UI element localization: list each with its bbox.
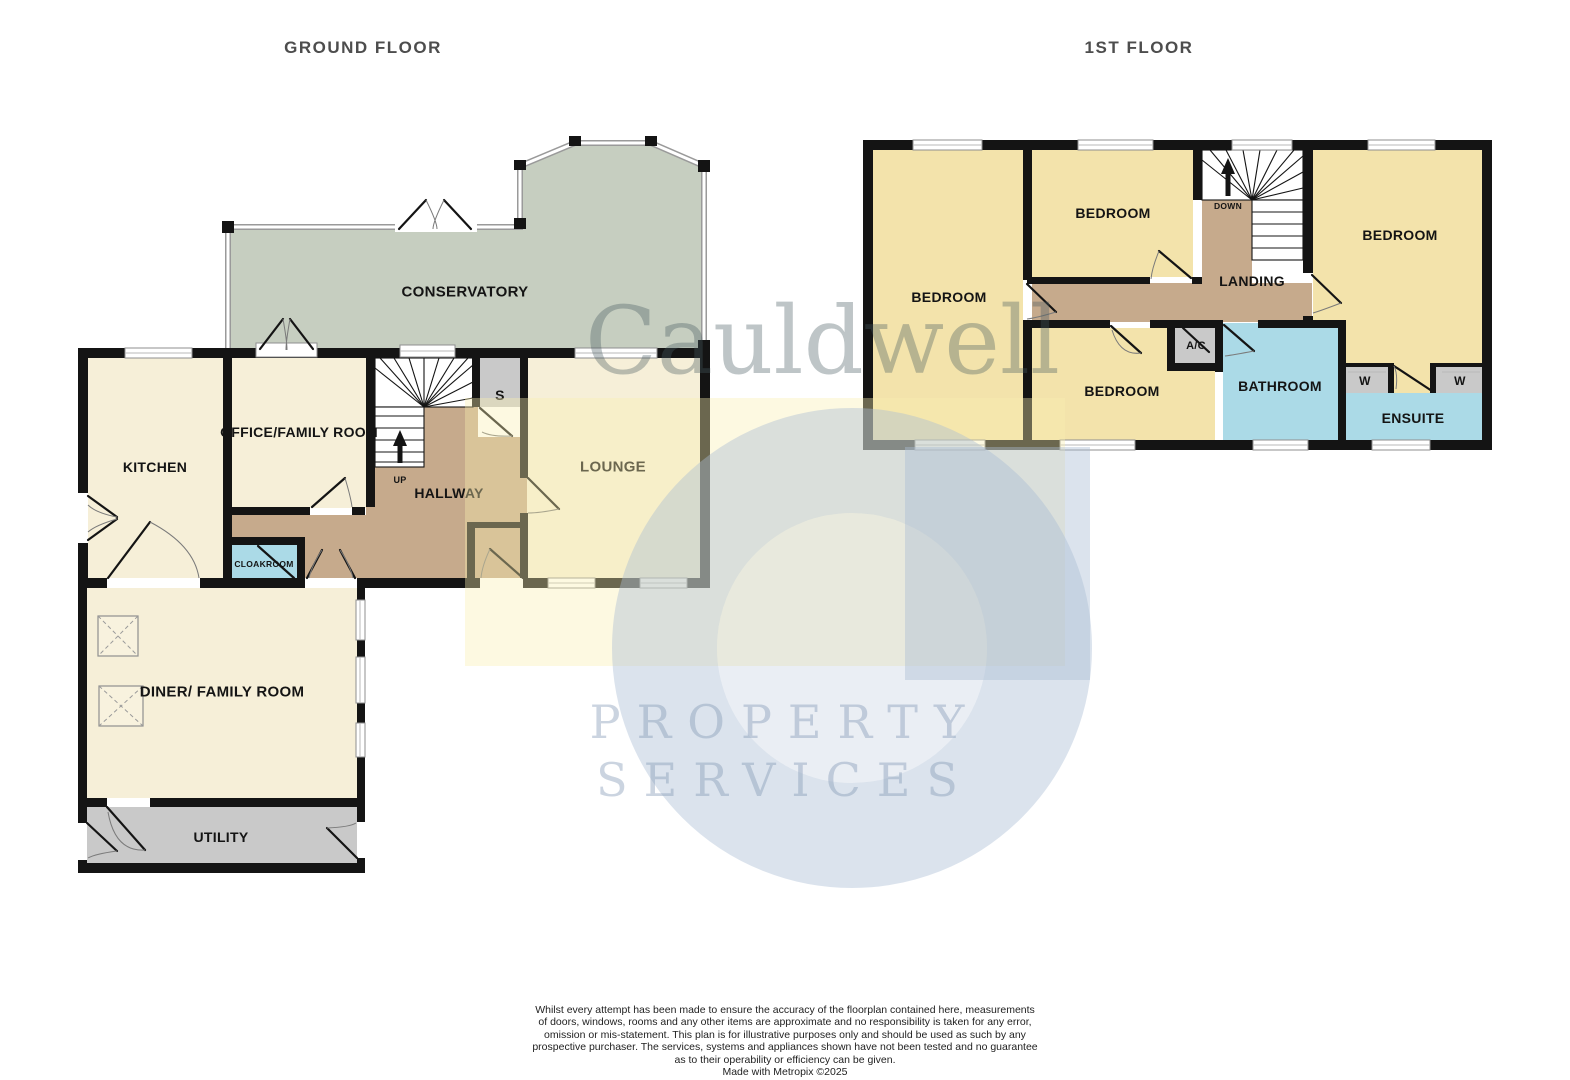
label-bedroom-right: BEDROOM xyxy=(1362,227,1437,243)
floorplan-page: CONSERVATORY KITCHEN OFFICE/FAMILY ROOM … xyxy=(0,0,1570,1080)
label-bathroom: BATHROOM xyxy=(1238,378,1322,394)
ground-floor-plan: CONSERVATORY KITCHEN OFFICE/FAMILY ROOM … xyxy=(78,136,710,873)
label-landing: LANDING xyxy=(1219,273,1285,289)
label-bedroom-left: BEDROOM xyxy=(911,289,986,305)
disclaimer-text: Whilst every attempt has been made to en… xyxy=(335,1004,1235,1066)
label-utility: UTILITY xyxy=(194,829,249,845)
label-ensuite: ENSUITE xyxy=(1382,410,1445,426)
label-up: UP xyxy=(393,475,406,485)
label-wardrobe-left: W xyxy=(1359,374,1371,388)
ground-room-conservatory xyxy=(222,136,710,352)
label-bedroom-top: BEDROOM xyxy=(1075,205,1150,221)
label-diner: DINER/ FAMILY ROOM xyxy=(140,684,305,701)
label-office: OFFICE/FAMILY ROOM xyxy=(220,424,378,440)
label-lounge: LOUNGE xyxy=(580,459,646,476)
label-cloakroom: CLOAKROOM xyxy=(234,559,293,569)
metropix-credit: Made with Metropix ©2025 xyxy=(335,1066,1235,1078)
first-floor-plan: BEDROOM BEDROOM BEDROOM BEDROOM LANDING … xyxy=(863,140,1492,450)
label-store: S xyxy=(495,387,505,403)
label-ac: A/C xyxy=(1186,340,1206,352)
label-bedroom-bottom: BEDROOM xyxy=(1084,383,1159,399)
first-floor-title: 1ST FLOOR xyxy=(1085,38,1194,58)
label-kitchen: KITCHEN xyxy=(123,459,187,475)
floorplan-drawing: CONSERVATORY KITCHEN OFFICE/FAMILY ROOM … xyxy=(0,0,1570,1080)
label-down: DOWN xyxy=(1214,201,1242,211)
label-wardrobe-right: W xyxy=(1454,374,1466,388)
label-conservatory: CONSERVATORY xyxy=(402,284,529,301)
label-hallway: HALLWAY xyxy=(414,485,484,501)
ground-floor-title: GROUND FLOOR xyxy=(284,38,442,58)
